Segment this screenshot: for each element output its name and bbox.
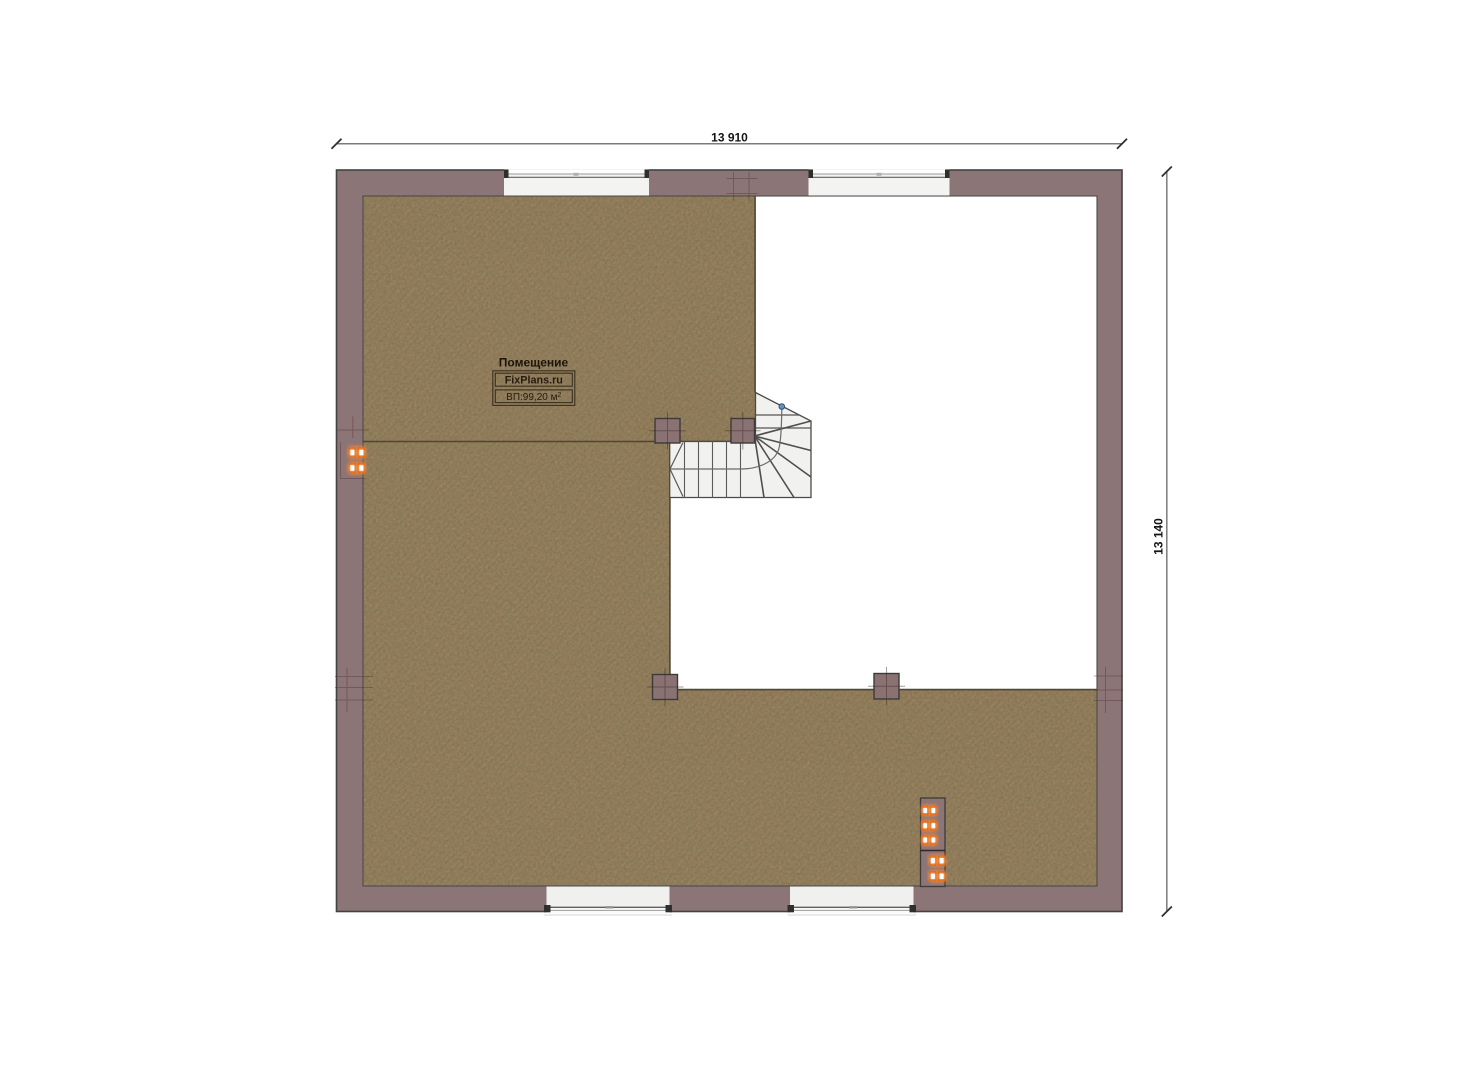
svg-text:13 910: 13 910	[711, 131, 748, 145]
svg-text:FixPlans.ru: FixPlans.ru	[505, 375, 563, 387]
svg-text:ВП:99,20 м2: ВП:99,20 м2	[506, 392, 561, 403]
svg-text:13 140: 13 140	[1152, 518, 1166, 555]
svg-text:Помещение: Помещение	[499, 356, 569, 370]
